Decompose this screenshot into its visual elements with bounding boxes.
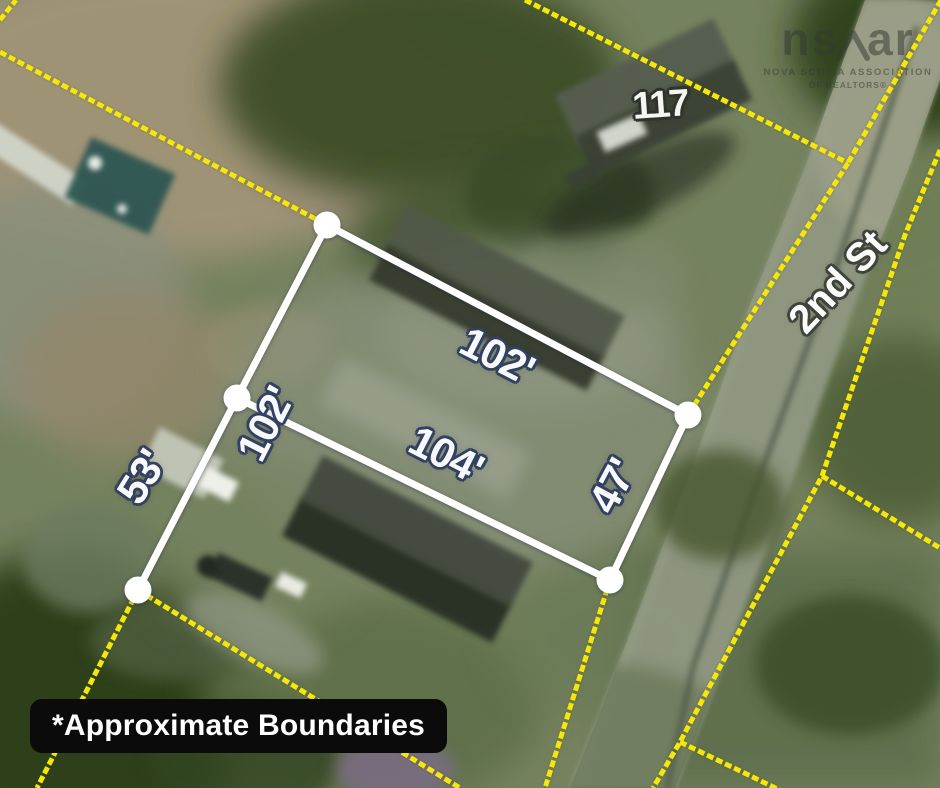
nsar-tagline-realtors: OF REALTORS®: [760, 81, 936, 90]
nsar-roof-icon: [836, 27, 870, 61]
nsar-tagline-association: NOVA SCOTIA ASSOCIATION: [760, 68, 936, 78]
property-aerial-map: 102' 104' 47' 102' 53' 117 2nd St ns ar …: [0, 0, 940, 788]
terrain-art: [0, 0, 940, 788]
nsar-logo: ns ar: [760, 16, 936, 62]
approximate-boundaries-banner: *Approximate Boundaries: [30, 699, 447, 753]
nsar-logo-suffix: ar: [867, 16, 914, 62]
nsar-watermark: ns ar NOVA SCOTIA ASSOCIATION OF REALTOR…: [760, 16, 936, 89]
nsar-logo-prefix: ns: [781, 16, 839, 62]
house-number-label: 117: [631, 84, 689, 126]
aerial-photo: [0, 0, 940, 788]
